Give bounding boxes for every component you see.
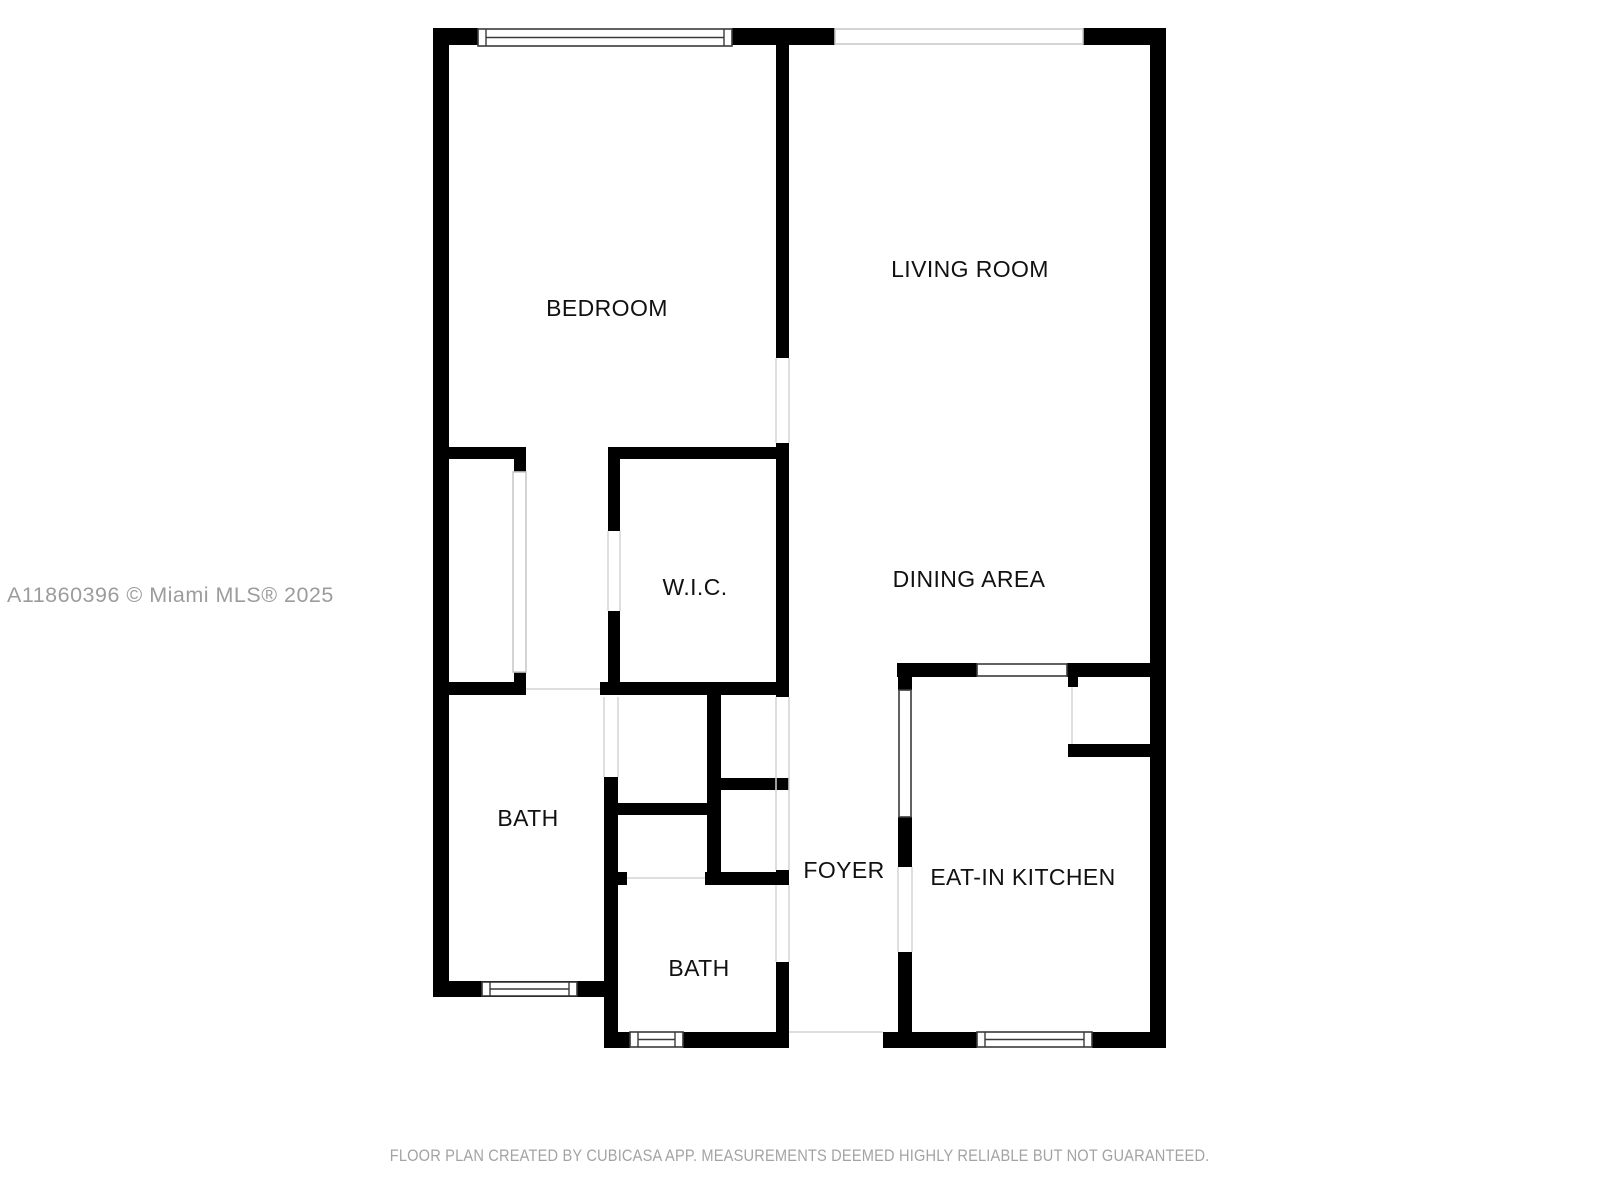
wall-segment (898, 663, 912, 690)
room-label-bedroom: BEDROOM (546, 295, 668, 321)
walls-layer (433, 28, 1166, 1048)
wall-segment (898, 817, 912, 867)
mls-watermark: A11860396 © Miami MLS® 2025 (7, 583, 334, 608)
room-label-eat-in-kitchen: EAT-IN KITCHEN (930, 864, 1115, 890)
wall-segment (1068, 677, 1078, 687)
wall-segment (1150, 28, 1166, 1048)
wall-segment (600, 682, 789, 695)
wall-segment (433, 28, 449, 997)
wall-segment (433, 447, 526, 459)
wall-segment (608, 447, 789, 459)
wall-segment (776, 45, 789, 358)
wall-segment (433, 682, 526, 695)
wall-segment (776, 443, 789, 697)
room-label-foyer: FOYER (803, 857, 884, 883)
floorplan-page: BEDROOMLIVING ROOMW.I.C.DINING AREABATHF… (0, 0, 1600, 1200)
wall-segment (604, 872, 627, 885)
wall-segment (617, 1032, 630, 1048)
wall-segment (707, 695, 721, 885)
room-label-bath-1: BATH (497, 805, 558, 831)
room-label-wic: W.I.C. (662, 574, 727, 600)
wall-segment (433, 28, 478, 45)
wall-segment (1068, 744, 1150, 757)
wall-segment (514, 459, 526, 472)
wall-segment (898, 952, 912, 1033)
opening-symbol (513, 472, 526, 672)
wall-segment (604, 777, 618, 1048)
wall-segment (883, 1032, 977, 1048)
room-labels-layer: BEDROOMLIVING ROOMW.I.C.DINING AREABATHF… (497, 256, 1115, 981)
room-label-bath-2: BATH (668, 955, 729, 981)
wall-segment (514, 672, 526, 682)
wall-segment (776, 962, 789, 1033)
opening-symbol (977, 664, 1067, 676)
wall-segment (683, 1032, 789, 1048)
wall-segment (732, 28, 835, 45)
room-label-living-room: LIVING ROOM (891, 256, 1049, 282)
wall-segment (1092, 1032, 1166, 1048)
wall-segment (721, 778, 789, 790)
opening-symbol (899, 690, 911, 817)
wall-segment (617, 803, 709, 815)
footer-disclaimer: FLOOR PLAN CREATED BY CUBICASA APP. MEAS… (0, 1146, 1600, 1166)
footer-disclaimer-text: FLOOR PLAN CREATED BY CUBICASA APP. MEAS… (390, 1146, 1210, 1166)
wall-segment (1067, 663, 1166, 677)
room-label-dining-area: DINING AREA (893, 566, 1046, 592)
wall-segment (608, 459, 620, 531)
wall-segment (705, 872, 789, 885)
opening-symbol (835, 29, 1083, 44)
wall-segment (608, 611, 620, 695)
